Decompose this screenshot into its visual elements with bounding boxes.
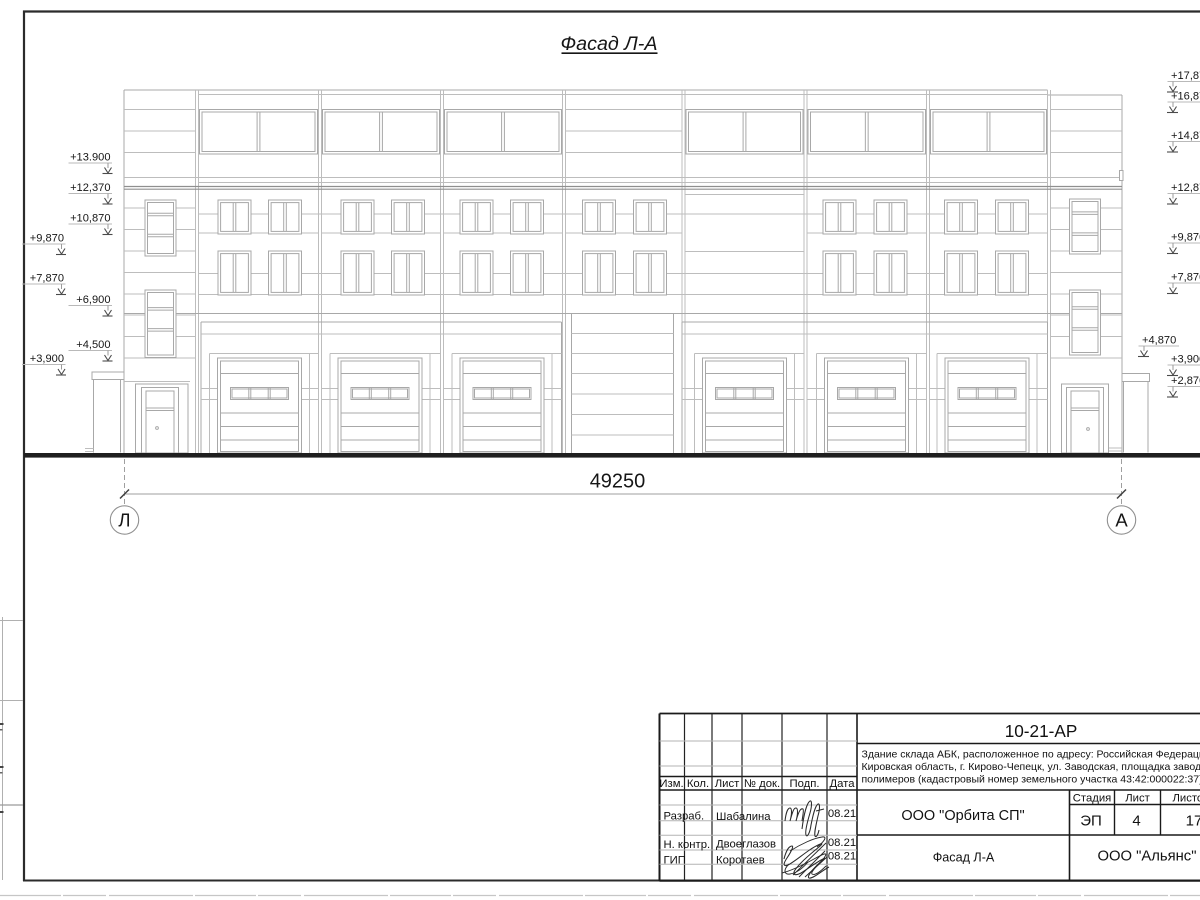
svg-text:49250: 49250: [590, 471, 646, 493]
svg-text:08.21: 08.21: [828, 808, 856, 820]
svg-text:Подп.: Подп.: [789, 778, 819, 790]
svg-text:+9,870: +9,870: [30, 233, 64, 245]
svg-text:+10,870: +10,870: [70, 213, 110, 225]
svg-text:Листов: Листов: [1173, 793, 1200, 805]
svg-text:+16,870: +16,870: [1171, 91, 1200, 103]
svg-text:+2,870: +2,870: [1171, 375, 1200, 387]
svg-text:Лист: Лист: [715, 778, 740, 790]
svg-text:+12,370: +12,370: [70, 182, 110, 194]
svg-text:+14,870: +14,870: [1171, 130, 1200, 142]
svg-text:Коротаев: Коротаев: [716, 855, 765, 867]
svg-text:Н. контр.: Н. контр.: [664, 839, 711, 851]
svg-text:+3,900: +3,900: [1171, 354, 1200, 366]
svg-text:Кол.: Кол.: [687, 778, 709, 790]
svg-text:+6,900: +6,900: [76, 294, 110, 306]
svg-text:+7,870: +7,870: [1171, 272, 1200, 284]
svg-text:+7,870: +7,870: [30, 273, 64, 285]
svg-text:Разраб.: Разраб.: [664, 811, 705, 823]
svg-text:08.21: 08.21: [828, 851, 856, 863]
svg-text:Шабалина: Шабалина: [716, 811, 771, 823]
svg-text:Фасад Л-А: Фасад Л-А: [561, 33, 658, 55]
svg-text:ЭП: ЭП: [1080, 813, 1102, 830]
svg-text:Лист: Лист: [1125, 793, 1150, 805]
svg-text:А: А: [1115, 510, 1128, 531]
svg-text:10-21-АР: 10-21-АР: [1005, 721, 1078, 741]
svg-text:Л: Л: [118, 510, 130, 531]
svg-text:Стадия: Стадия: [1073, 793, 1112, 805]
svg-text:+4,500: +4,500: [76, 339, 110, 351]
svg-text:17: 17: [1186, 813, 1200, 830]
svg-text:ООО "Альянс": ООО "Альянс": [1098, 849, 1197, 865]
svg-text:Двоеглазов: Двоеглазов: [716, 839, 776, 851]
svg-text:Изм.: Изм.: [659, 778, 683, 790]
svg-text:полимеров (кадастровый номер з: полимеров (кадастровый номер земельного …: [862, 773, 1200, 785]
svg-text:+17,870: +17,870: [1171, 70, 1200, 82]
svg-text:№ док.: № док.: [744, 778, 780, 790]
svg-text:+3,900: +3,900: [30, 353, 64, 365]
svg-text:Дата: Дата: [829, 778, 855, 790]
svg-text:ООО "Орбита СП": ООО "Орбита СП": [901, 808, 1024, 824]
svg-text:+9,870: +9,870: [1171, 232, 1200, 244]
svg-text:4: 4: [1132, 813, 1140, 830]
svg-text:+12,870: +12,870: [1171, 182, 1200, 194]
svg-text:Кировская область, г. Кирово-Ч: Кировская область, г. Кирово-Чепецк, ул.…: [862, 761, 1200, 773]
svg-text:Здание склада АБК, расположенн: Здание склада АБК, расположенное по адре…: [862, 749, 1200, 761]
svg-text:08.21: 08.21: [828, 837, 856, 849]
svg-text:ГИП: ГИП: [664, 855, 686, 867]
svg-text:+13.900: +13.900: [70, 152, 110, 164]
svg-text:+4,870: +4,870: [1142, 335, 1176, 347]
svg-text:Фасад Л-А: Фасад Л-А: [933, 851, 995, 865]
